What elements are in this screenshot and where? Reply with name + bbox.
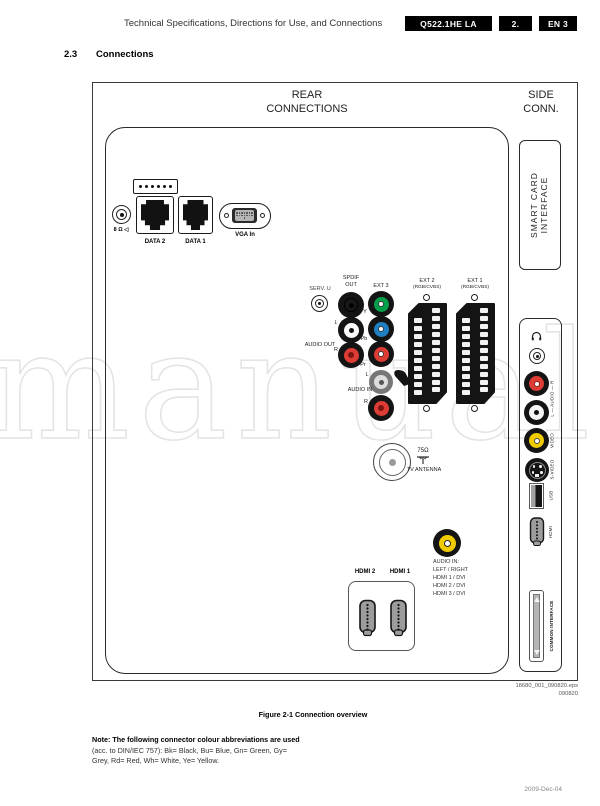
- antenna-label: TV ANTENNA: [400, 467, 448, 473]
- ext1-label: EXT 1: [453, 278, 497, 284]
- hdmi2-connector: [358, 599, 377, 637]
- antenna-impedance-label: 75Ω: [410, 448, 436, 455]
- vga-pins-icon: [235, 210, 254, 221]
- antenna-connector: [373, 443, 411, 481]
- common-interface-label: COMMON INTERFACE: [549, 591, 557, 661]
- rear-audio-in-connector: [433, 529, 461, 557]
- side-video-connector: [524, 428, 549, 453]
- data1-connector: [178, 196, 213, 234]
- ext1-scart-connector: [456, 303, 495, 404]
- side-title-line2: CONN.: [511, 103, 571, 116]
- eps-filename: 18680_001_090820.eps: [420, 683, 578, 689]
- page-header-title: Technical Specifications, Directions for…: [124, 18, 382, 29]
- ext1-sublabel: (RGB/CVBS): [453, 285, 497, 291]
- ext2-screw-top: [423, 294, 430, 301]
- data2-connector: [136, 196, 174, 234]
- side-title-line1: SIDE: [511, 89, 571, 102]
- pb-label: Pb: [358, 336, 370, 342]
- figure-caption: Figure 2-1 Connection overview: [70, 711, 556, 719]
- arrow-up-icon: [534, 597, 540, 602]
- side-svideo-label: S-VIDEO: [550, 453, 557, 487]
- eps-date: 090820: [420, 691, 578, 697]
- ext1-screw-top: [471, 294, 478, 301]
- hdmi2-label: HDMI 2: [349, 569, 381, 576]
- data2-label: DATA 2: [134, 239, 176, 246]
- pr-label: Pr: [357, 362, 369, 368]
- side-audio-l-connector: [524, 400, 549, 425]
- arrow-down-icon: [534, 650, 540, 655]
- chassis-badge: Q522.1HE LA: [405, 16, 492, 31]
- side-video-label: VIDEO: [550, 426, 557, 456]
- footer-date: 2009-Dec-04: [452, 786, 562, 793]
- hdmi1-connector: [389, 599, 408, 637]
- ext2-scart-connector: [408, 303, 447, 404]
- note-line2: (acc. to DIN/IEC 757): Bk= Black, Bu= Bl…: [92, 746, 287, 755]
- rear-title-line2: CONNECTIONS: [207, 103, 407, 116]
- ext3-y-connector: [368, 291, 394, 317]
- audio-in-note: AUDIO IN: LEFT / RIGHT HDMI 1 / DVI HDMI…: [433, 559, 493, 599]
- side-audio-r-connector: [524, 371, 549, 396]
- side-usb-connector: [529, 483, 544, 509]
- manual-page: manual Technical Specifications, Directi…: [0, 0, 600, 806]
- hdmi1-label: HDMI 1: [384, 569, 416, 576]
- note-line1: Note: The following connector colour abb…: [92, 735, 300, 744]
- ext3-pr-connector: [368, 341, 394, 367]
- ext2-sublabel: (RGB/CVBS): [405, 285, 449, 291]
- side-usb-label: USB: [549, 486, 556, 506]
- side-svideo-connector: [525, 458, 549, 482]
- serv-label: SERV. U: [304, 286, 336, 292]
- rear-title-line1: REAR: [207, 89, 407, 102]
- rj45-icon: [183, 200, 208, 230]
- ext2-label: EXT 2: [405, 278, 449, 284]
- service-connector: [133, 179, 178, 194]
- side-hdmi-label: HDMI: [548, 520, 556, 544]
- audio-in-label: AUDIO IN: [342, 387, 378, 393]
- serv-connector: [311, 295, 328, 312]
- vga-label: VGA In: [225, 232, 265, 239]
- chapter-badge: 2.: [499, 16, 532, 31]
- language-page-badge: EN 3: [539, 16, 577, 31]
- headphone-icon: [531, 331, 542, 341]
- spdif-label: SPDIF OUT: [337, 275, 365, 288]
- section-number: 2.3: [64, 49, 77, 60]
- section-title: Connections: [96, 49, 154, 60]
- note-line3: Grey, Rd= Red, Wh= White, Ye= Yellow.: [92, 756, 219, 765]
- audio-in-r-connector: [368, 395, 394, 421]
- headphone-jack-connector: [529, 348, 545, 364]
- ext3-pb-connector: [368, 316, 394, 342]
- rj45-icon: [141, 200, 169, 230]
- ext3-label: EXT 3: [366, 283, 396, 289]
- vga-connector: [219, 203, 271, 229]
- side-hdmi-connector: [529, 517, 545, 547]
- side-audio-label: L — AUDIO — R: [550, 370, 557, 428]
- data1-label: DATA 1: [176, 239, 215, 246]
- common-interface-slot: [529, 590, 544, 662]
- smart-card-label: SMART CARD INTERFACE: [529, 150, 551, 260]
- ext1-screw-bottom: [471, 405, 478, 412]
- y-label: Y: [360, 309, 370, 315]
- speaker-out-connector: [112, 205, 131, 224]
- antenna-symbol-icon: [416, 456, 430, 464]
- ext2-screw-bottom: [423, 405, 430, 412]
